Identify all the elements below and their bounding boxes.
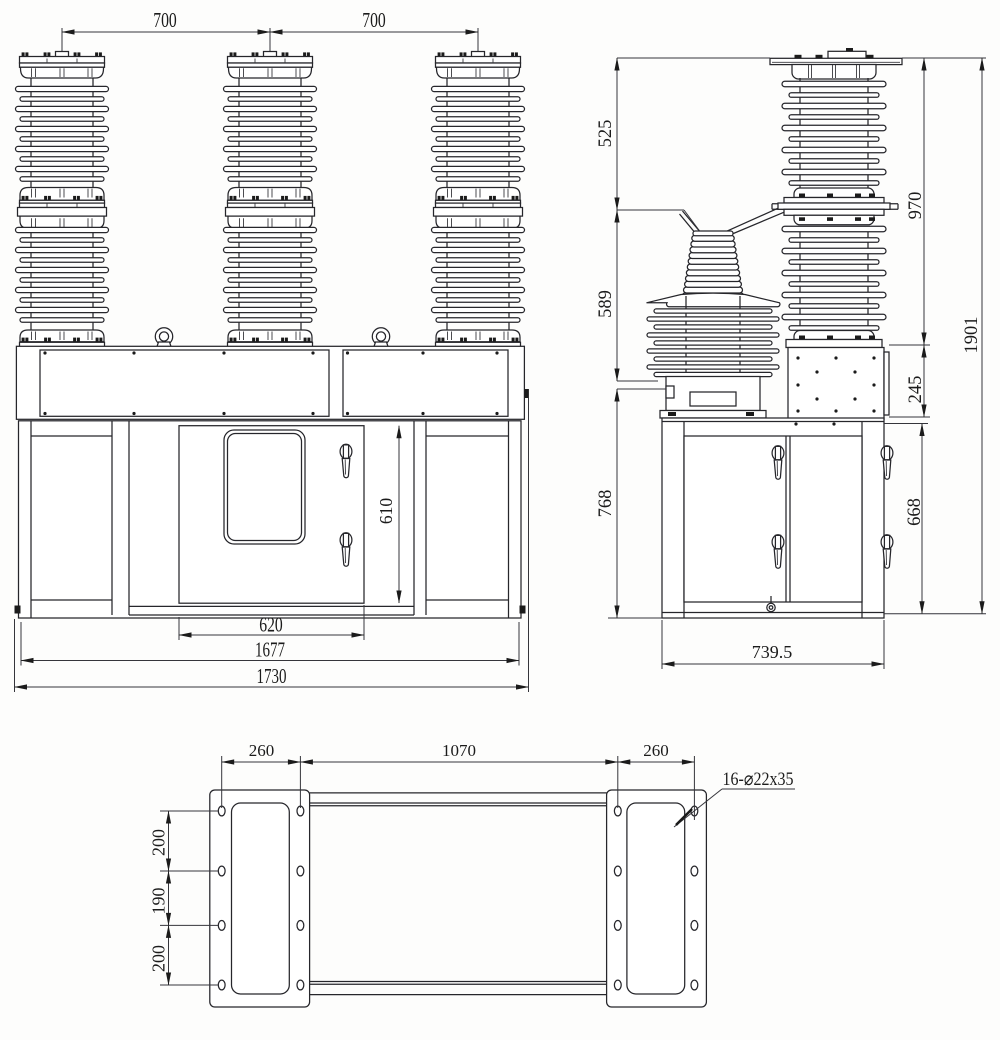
svg-text:245: 245 (906, 376, 926, 404)
svg-text:589: 589 (596, 290, 616, 318)
svg-text:260: 260 (249, 741, 275, 760)
svg-text:525: 525 (596, 120, 616, 148)
svg-text:260: 260 (643, 741, 669, 760)
svg-text:768: 768 (596, 490, 616, 518)
svg-text:1730: 1730 (257, 664, 287, 688)
svg-text:190: 190 (149, 888, 169, 915)
svg-text:1070: 1070 (442, 741, 476, 760)
svg-text:700: 700 (153, 8, 177, 32)
svg-text:620: 620 (259, 613, 283, 637)
svg-text:1677: 1677 (255, 638, 285, 662)
svg-text:610: 610 (376, 498, 396, 525)
svg-text:739.5: 739.5 (752, 642, 793, 662)
svg-text:970: 970 (906, 192, 926, 220)
svg-text:200: 200 (149, 945, 169, 972)
svg-text:16-⌀22x35: 16-⌀22x35 (723, 769, 794, 790)
svg-text:1901: 1901 (962, 317, 982, 354)
svg-text:700: 700 (362, 8, 386, 32)
svg-text:668: 668 (905, 498, 925, 526)
svg-text:200: 200 (149, 829, 169, 856)
